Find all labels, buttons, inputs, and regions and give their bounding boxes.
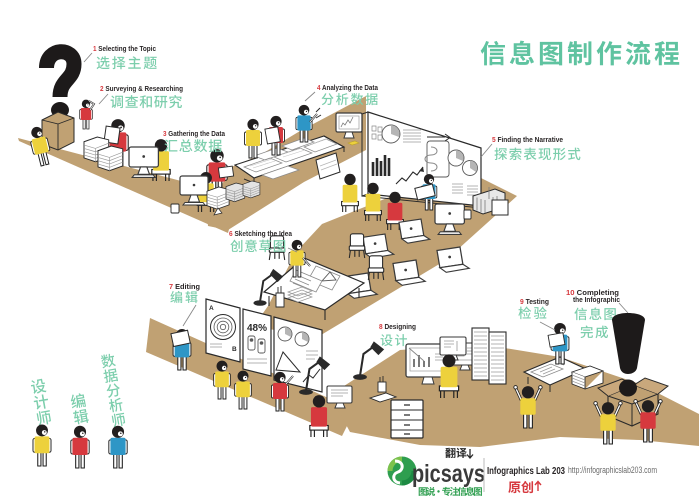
- svg-text:4 Analyzing the Data: 4 Analyzing the Data: [317, 83, 379, 92]
- svg-text:B: B: [232, 346, 237, 353]
- svg-text:Infographics Lab 203: Infographics Lab 203: [487, 465, 565, 477]
- svg-text:3 Gathering the Data: 3 Gathering the Data: [163, 129, 226, 138]
- svg-text:2 Surveying & Researching: 2 Surveying & Researching: [100, 84, 183, 93]
- svg-text:A: A: [209, 305, 214, 312]
- svg-text:the Infographic: the Infographic: [573, 295, 620, 304]
- svg-text:6 Sketching the Idea: 6 Sketching the Idea: [229, 229, 293, 238]
- svg-text:7 Editing: 7 Editing: [169, 282, 200, 291]
- svg-text:picsays: picsays: [412, 460, 485, 488]
- svg-text:http://infographicslab203.com: http://infographicslab203.com: [568, 465, 657, 475]
- svg-text:1 Selecting the Topic: 1 Selecting the Topic: [93, 44, 156, 53]
- svg-text:9 Testing: 9 Testing: [520, 297, 549, 306]
- svg-text:8 Designing: 8 Designing: [379, 322, 416, 331]
- svg-text:5 Finding the Narrative: 5 Finding the Narrative: [492, 135, 563, 144]
- svg-text:48%: 48%: [247, 323, 267, 334]
